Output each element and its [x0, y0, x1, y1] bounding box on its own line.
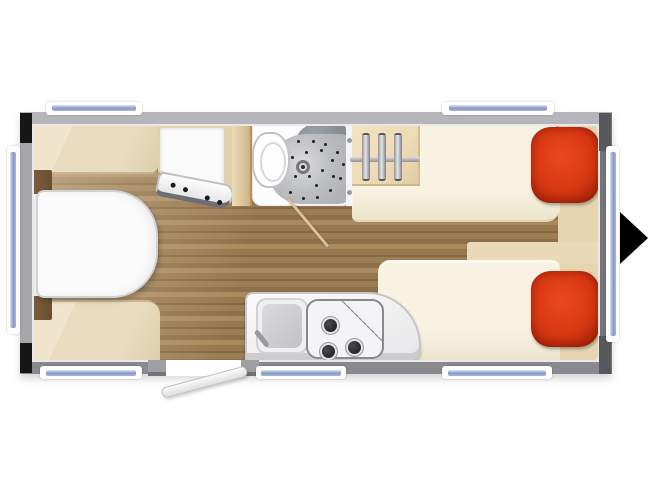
window-glass: [52, 105, 136, 111]
window-top-left: [46, 102, 142, 115]
caravan-shell-walls: [20, 112, 612, 374]
window-bottom-right: [442, 366, 552, 379]
window-left-side: [7, 146, 20, 334]
direction-arrow-right: [620, 212, 648, 264]
window-glass: [449, 105, 547, 111]
window-glass: [610, 152, 616, 336]
door-post-left: [148, 360, 166, 376]
floorplan-stage: [0, 0, 650, 487]
window-bottom-middle: [256, 366, 346, 379]
wall-trim-left-bottom: [20, 343, 32, 373]
wall-trim-left-top: [20, 113, 32, 143]
window-glass: [46, 370, 136, 376]
window-glass: [10, 152, 16, 328]
window-glass: [448, 370, 546, 376]
window-glass: [261, 370, 341, 376]
window-top-right: [442, 102, 554, 115]
window-right-side: [606, 146, 619, 342]
window-bottom-left: [40, 366, 142, 379]
